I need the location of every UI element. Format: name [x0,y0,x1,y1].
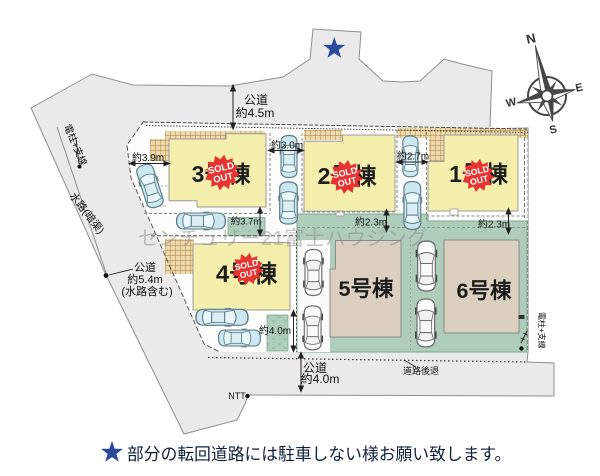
svg-text:約2.3m: 約2.3m [355,216,387,229]
svg-text:約2.3m: 約2.3m [478,218,510,231]
svg-text:部分の転回道路には駐車しない様お願い致します。: 部分の転回道路には駐車しない様お願い致します。 [127,445,511,464]
svg-text:公道: 公道 [244,93,268,107]
svg-text:道路後退: 道路後退 [403,365,439,376]
svg-text:NTT: NTT [228,391,246,401]
svg-text:約3.9m: 約3.9m [132,151,164,164]
svg-text:約4.0m: 約4.0m [301,371,340,386]
svg-text:(水路含む): (水路含む) [121,284,172,298]
svg-text:約2.7m: 約2.7m [397,150,429,163]
svg-text:電柱+支線: 電柱+支線 [537,312,547,349]
svg-text:約5.4m: 約5.4m [127,272,162,286]
svg-text:センチュリー21富士ハウジング: センチュリー21富士ハウジング [138,227,428,250]
svg-text:約3.7m: 約3.7m [231,216,262,228]
svg-text:約3.0m: 約3.0m [271,139,303,152]
svg-text:6号棟: 6号棟 [457,278,512,303]
svg-text:約4.0m: 約4.0m [259,324,291,337]
svg-text:公道: 公道 [134,260,156,274]
svg-text:5号棟: 5号棟 [339,276,394,301]
svg-text:約4.5m: 約4.5m [236,105,275,120]
